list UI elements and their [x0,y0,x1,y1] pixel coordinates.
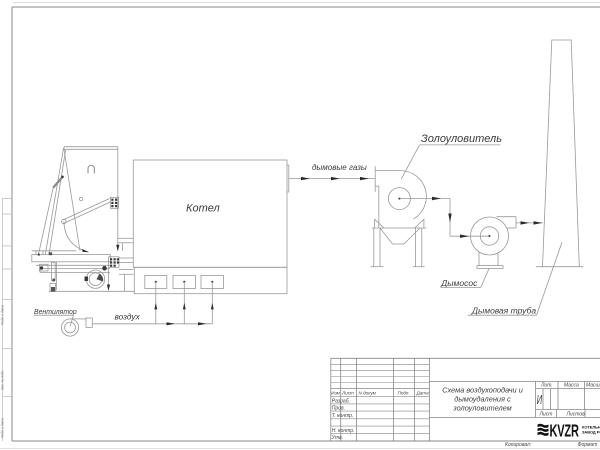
svg-text:Формат: Формат [578,442,598,448]
svg-text:Лит.: Лит. [540,383,553,389]
svg-text:Т. контр.: Т. контр. [332,413,354,419]
svg-text:Подп. и дата: Подп. и дата [1,305,5,325]
svg-text:Инв. № подл.: Инв. № подл. [1,370,5,390]
svg-text:воздух: воздух [115,312,141,322]
svg-text:Изм: Изм [331,391,340,396]
svg-text:Масшт: Масшт [586,383,600,389]
svg-text:Утв.: Утв. [332,435,343,441]
svg-text:Лист: Лист [539,412,553,418]
svg-text:Дымовая труба: Дымовая труба [471,306,536,316]
svg-text:Н. контр.: Н. контр. [332,428,355,434]
svg-text:Разраб.: Разраб. [332,398,350,404]
svg-text:И: И [537,395,543,408]
svg-text:золоуловителем: золоуловителем [452,404,511,413]
svg-text:дымовые газы: дымовые газы [312,163,367,172]
svg-text:KVZR: KVZR [550,422,580,441]
svg-text:Золоуловитель: Золоуловитель [421,133,502,145]
svg-text:Вентилятор: Вентилятор [34,309,77,316]
svg-text:Дата: Дата [416,391,430,396]
svg-text:Масса: Масса [564,383,579,389]
svg-text:Пров.: Пров. [332,406,345,412]
svg-text:Подп.: Подп. [398,391,410,396]
svg-text:Лист: Лист [341,391,354,396]
svg-text:ЗАВОД РОСС: ЗАВОД РОСС [582,430,600,435]
svg-text:Листов: Листов [566,412,586,418]
svg-text:дымоудаления с: дымоудаления с [454,395,511,404]
svg-text:Схема воздухоподачи и: Схема воздухоподачи и [442,386,523,395]
svg-text:Дымосос: Дымосос [440,278,478,288]
svg-text:Подп. и дата: Подп. и дата [1,418,5,438]
svg-text:Котел: Котел [186,203,220,215]
svg-text:N докум: N докум [359,391,377,396]
svg-text:Копировал:: Копировал: [505,442,532,448]
